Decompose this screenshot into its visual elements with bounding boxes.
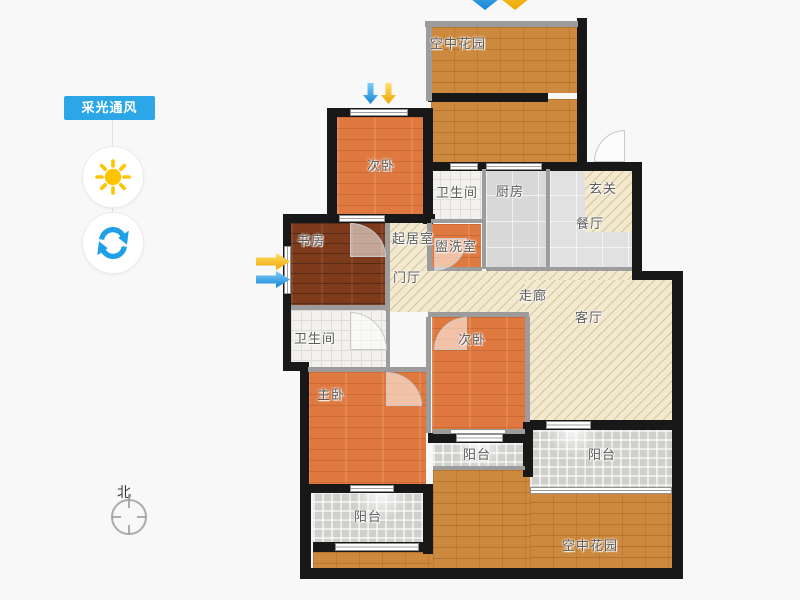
room-label-washroom: 盥洗室	[435, 236, 477, 255]
wall-partition	[546, 169, 550, 269]
room-label-sky-garden-bottom: 空中花园	[562, 535, 618, 554]
room-sky-garden-bottom-floor	[433, 470, 530, 568]
room-label-balcony-left: 阳台	[354, 506, 382, 525]
room-label-study: 书房	[297, 230, 325, 249]
wall-segment	[300, 362, 309, 488]
compass-dial-icon	[105, 493, 153, 541]
wall-partition	[486, 267, 632, 271]
window	[350, 109, 408, 116]
room-label-sky-garden-top: 空中花园	[430, 33, 486, 52]
wall-partition	[525, 317, 530, 422]
rotate-plan-button[interactable]	[82, 212, 144, 274]
room-label-bathroom-lower: 卫生间	[294, 328, 336, 347]
room-label-balcony-right: 阳台	[588, 444, 616, 463]
wall-partition	[386, 310, 390, 372]
wall-partition	[385, 223, 390, 311]
sunlight-button[interactable]	[82, 146, 144, 208]
wall-segment	[632, 162, 642, 275]
room-label-bedroom-mid: 次卧	[458, 329, 486, 348]
light-arrow-blue-right-icon	[256, 271, 290, 288]
wall-segment	[300, 486, 311, 574]
wall-segment	[578, 162, 640, 171]
balcony-parapet	[530, 487, 672, 494]
wall-partition	[308, 367, 427, 372]
door-opening	[339, 215, 385, 222]
room-label-corridor: 走廊	[519, 285, 547, 304]
light-arrow-blue-down-icon	[471, 0, 499, 10]
window	[456, 434, 503, 442]
light-arrow-blue-down-icon	[363, 83, 378, 104]
room-label-balcony-mid: 阳台	[463, 444, 491, 463]
room-label-entry: 玄关	[589, 178, 617, 197]
window	[486, 163, 542, 170]
room-label-foyer: 门厅	[393, 267, 421, 286]
wall-partition	[482, 169, 486, 269]
door-opening	[350, 485, 394, 492]
room-label-kitchen: 厨房	[496, 181, 524, 200]
wall-partition	[425, 21, 578, 27]
wall-partition	[428, 312, 529, 317]
room-label-living: 客厅	[575, 307, 603, 326]
window	[450, 429, 506, 434]
light-arrow-yellow-down-icon	[381, 83, 396, 104]
wall-segment	[327, 108, 337, 215]
room-label-bedroom-top: 次卧	[367, 155, 395, 174]
wall-partition	[431, 219, 482, 223]
room-sky-garden-top-floor	[431, 99, 577, 163]
wall-segment	[577, 18, 587, 170]
wall-segment	[428, 93, 548, 102]
window	[335, 543, 419, 551]
wall-partition	[426, 317, 431, 433]
lighting-ventilation-badge: 采光通风	[64, 96, 155, 120]
door-arc-entry	[594, 130, 625, 162]
window	[546, 421, 591, 429]
sun-icon	[93, 157, 133, 197]
room-label-master-bedroom: 主卧	[317, 384, 345, 403]
wall-segment	[672, 271, 683, 579]
room-sky-garden-bottom-floor	[313, 552, 433, 568]
wall-segment	[300, 568, 683, 579]
room-label-dining: 餐厅	[576, 213, 604, 232]
light-arrow-yellow-right-icon	[256, 253, 290, 270]
room-label-sitting: 起居室	[392, 228, 434, 247]
wall-partition	[291, 305, 386, 310]
floorplan-viewer: 采光通风	[0, 0, 800, 600]
light-arrow-yellow-down-icon	[501, 0, 529, 10]
wall-segment	[423, 484, 433, 554]
room-sky-garden-bottom-floor	[530, 491, 672, 568]
room-living-floor	[525, 280, 672, 428]
room-label-bathroom-top: 卫生间	[436, 182, 478, 201]
window	[450, 163, 478, 170]
rotate-icon	[92, 222, 134, 264]
